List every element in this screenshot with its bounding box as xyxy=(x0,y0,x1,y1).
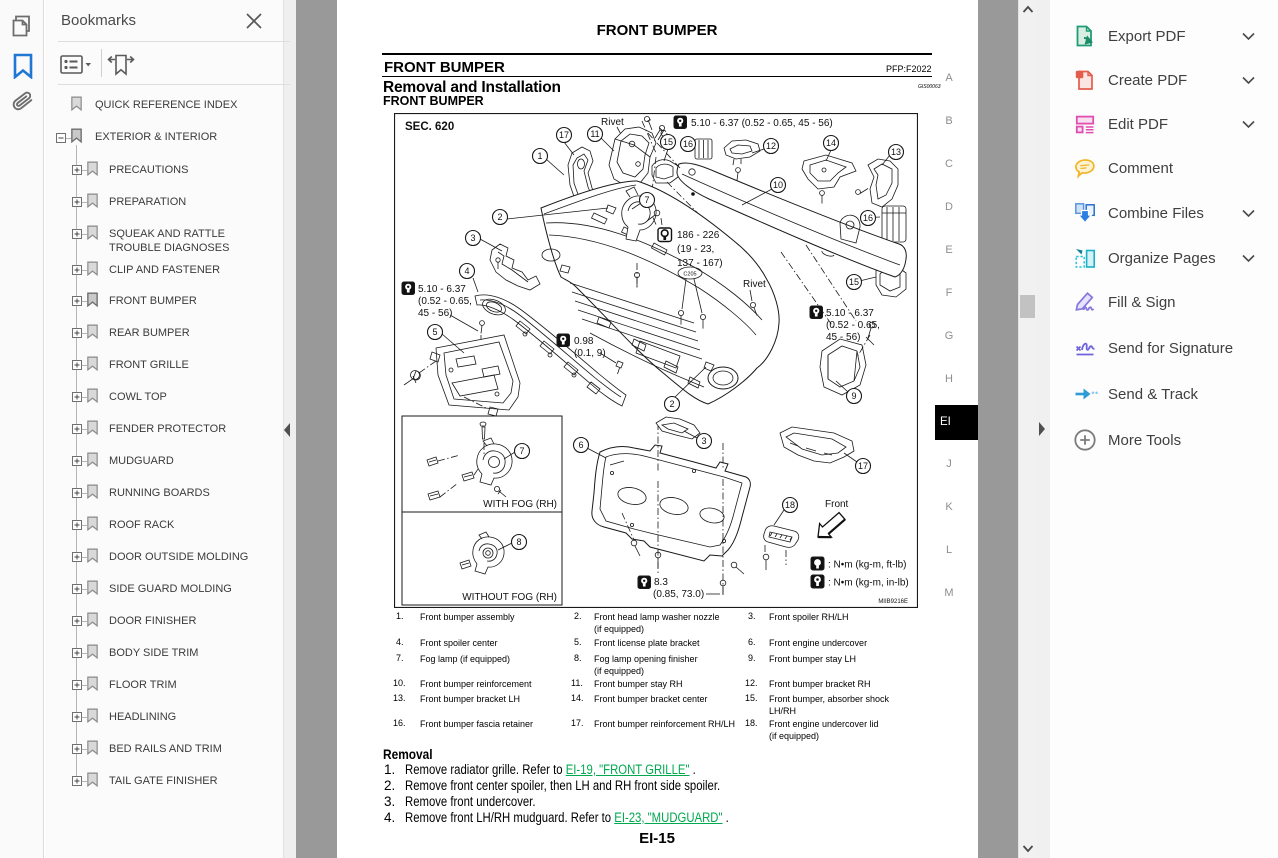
svg-text:: N•m (kg-m, ft-lb): : N•m (kg-m, ft-lb) xyxy=(828,560,907,571)
svg-text:0.98: 0.98 xyxy=(574,336,594,347)
svg-text:13: 13 xyxy=(891,147,901,157)
svg-text:6: 6 xyxy=(578,440,583,450)
svg-text:186 - 226: 186 - 226 xyxy=(677,230,720,241)
svg-text:Rivet: Rivet xyxy=(743,279,766,290)
svg-text:WITHOUT FOG (RH): WITHOUT FOG (RH) xyxy=(462,592,557,603)
svg-text:3: 3 xyxy=(470,233,475,243)
svg-text:7: 7 xyxy=(519,446,524,456)
svg-text:16: 16 xyxy=(683,139,693,149)
svg-text:5: 5 xyxy=(432,327,437,337)
svg-text:5.10 - 6.37 (0.52 - 0.65, 45 -: 5.10 - 6.37 (0.52 - 0.65, 45 - 56) xyxy=(691,118,833,129)
svg-text:Front: Front xyxy=(825,499,849,510)
svg-text:Rivet: Rivet xyxy=(601,117,624,128)
svg-text:45 - 56): 45 - 56) xyxy=(418,308,452,319)
svg-text:4: 4 xyxy=(464,266,469,276)
svg-text:8.3: 8.3 xyxy=(654,577,668,588)
svg-text:17: 17 xyxy=(559,130,569,140)
svg-text:(0.52 - 0.65,: (0.52 - 0.65, xyxy=(418,296,472,307)
svg-text:(19 - 23,: (19 - 23, xyxy=(677,244,714,255)
svg-text:: N•m (kg-m, in-lb): : N•m (kg-m, in-lb) xyxy=(828,578,909,589)
svg-text:SEC. 620: SEC. 620 xyxy=(405,121,454,133)
svg-text:8: 8 xyxy=(516,537,521,547)
svg-text:15: 15 xyxy=(849,277,859,287)
svg-text:10: 10 xyxy=(773,180,783,190)
svg-text:7: 7 xyxy=(644,195,649,205)
svg-text:18: 18 xyxy=(785,500,795,510)
svg-text:11: 11 xyxy=(590,129,599,139)
svg-text:WITH FOG (RH): WITH FOG (RH) xyxy=(483,499,557,510)
svg-text:12: 12 xyxy=(766,141,776,151)
svg-text:3: 3 xyxy=(701,436,706,446)
svg-text:5.10 - 6.37: 5.10 - 6.37 xyxy=(418,284,466,295)
svg-text:45 - 56): 45 - 56) xyxy=(826,332,860,343)
svg-text:15: 15 xyxy=(663,137,673,147)
svg-text:(0.85, 73.0): (0.85, 73.0) xyxy=(653,589,704,600)
svg-text:16: 16 xyxy=(863,213,873,223)
svg-text:C205: C205 xyxy=(683,272,696,278)
svg-text:9: 9 xyxy=(851,391,856,401)
svg-text:2: 2 xyxy=(669,399,674,409)
svg-text:2: 2 xyxy=(497,212,502,222)
svg-text:5.10 - 6.37: 5.10 - 6.37 xyxy=(826,308,874,319)
svg-text:137 - 167): 137 - 167) xyxy=(677,258,723,269)
svg-text:(0.52 - 0.65,: (0.52 - 0.65, xyxy=(826,320,880,331)
svg-text:17: 17 xyxy=(858,461,868,471)
svg-text:MIIB9216E: MIIB9216E xyxy=(878,599,908,605)
svg-text:14: 14 xyxy=(826,138,836,148)
svg-text:1: 1 xyxy=(537,151,542,161)
